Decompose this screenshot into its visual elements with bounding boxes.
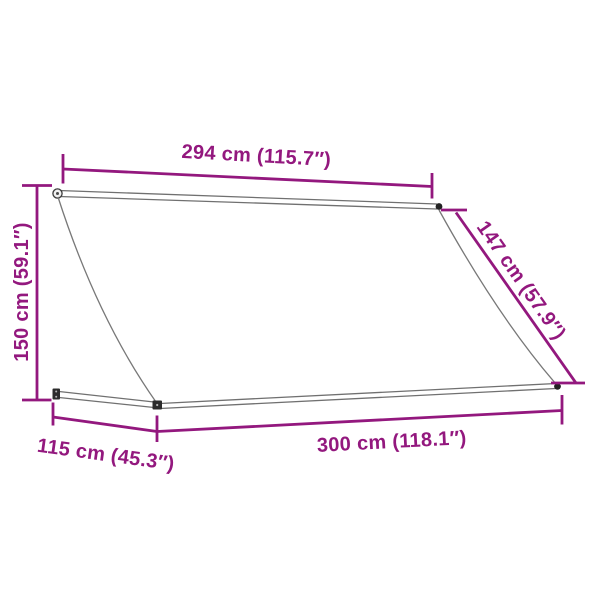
dimension-label-side-length: 147 cm (57.9″): [472, 217, 570, 344]
front-bar-corner-screw: [156, 404, 158, 406]
dimension-height: 150 cm (59.1″): [11, 186, 52, 401]
front-bar-bottom-edge: [160, 389, 556, 409]
arm-wall-bracket: [53, 389, 61, 400]
arm-wall-bracket-screw-top: [55, 391, 57, 393]
dimension-projection: 115 cm (45.3″): [36, 403, 176, 476]
dimension-line: [63, 169, 432, 187]
diagram-canvas: 294 cm (115.7″) 150 cm (59.1″) 147 cm (5…: [0, 0, 600, 600]
front-bar-top-edge: [160, 384, 556, 404]
roller-left-end-screw: [56, 192, 59, 195]
dimension-label-height: 150 cm (59.1″): [11, 222, 33, 361]
roller-bar-top-edge: [59, 191, 437, 205]
dimension-fabric-width: 294 cm (115.7″): [63, 141, 432, 199]
arm-top-edge: [59, 392, 154, 403]
dimension-side-length: 147 cm (57.9″): [441, 210, 585, 383]
left-drop-arm: [53, 389, 155, 408]
awning-dimension-diagram: 294 cm (115.7″) 150 cm (59.1″) 147 cm (5…: [0, 0, 600, 600]
fabric-left-edge: [58, 197, 156, 402]
dimension-line: [456, 213, 576, 384]
dimension-label-frame-width: 300 cm (118.1″): [316, 427, 467, 457]
dimension-line: [157, 411, 562, 432]
roller-bar-bottom-edge: [59, 197, 437, 210]
dimension-line: [53, 417, 157, 432]
dimension-frame-width: 300 cm (118.1″): [157, 395, 562, 457]
dimension-label-projection: 115 cm (45.3″): [36, 435, 176, 476]
dimension-label-fabric-width: 294 cm (115.7″): [181, 141, 332, 171]
roller-bar: [53, 189, 443, 210]
arm-bottom-edge: [59, 398, 154, 408]
arm-wall-bracket-screw-bottom: [55, 396, 57, 398]
front-bar: [153, 383, 561, 409]
